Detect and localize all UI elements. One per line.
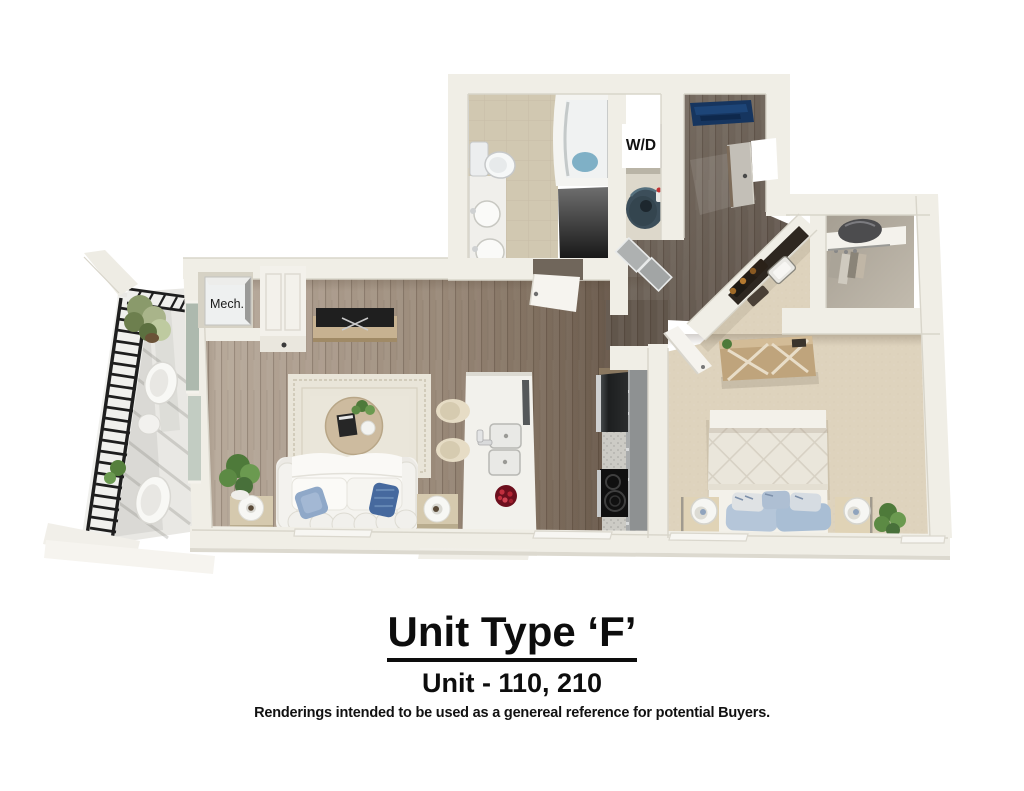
svg-text:W/D: W/D [626,137,656,154]
svg-text:Mech.: Mech. [210,297,244,311]
